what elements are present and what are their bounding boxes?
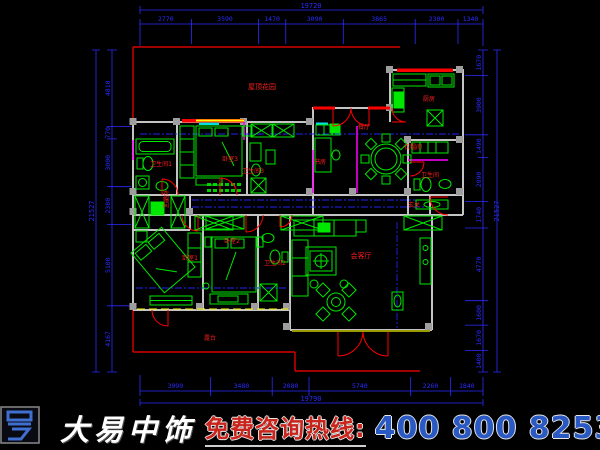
label-bedroom1: 卧室1 (182, 254, 198, 262)
label-cloak-right: 衣帽间 (404, 143, 422, 151)
dim-right-seg-4: 1740 (475, 207, 483, 223)
dim-bottom-seg-5: 1840 (459, 382, 475, 390)
dim-bottom-total: 19790 (300, 395, 321, 403)
dim-right-seg-2: 1490 (475, 138, 483, 154)
dim-bottom-seg-3: 5740 (352, 382, 368, 390)
label-terrace: 露台 (204, 334, 216, 342)
wall-posts (130, 66, 464, 330)
dim-top-seg-2: 1470 (264, 15, 280, 23)
dim-right-seg-6: 1600 (475, 305, 483, 321)
label-bath-right: 卫生间 (421, 171, 439, 179)
hotline-label: 免费咨询热线: (205, 409, 366, 447)
dim-left-seg-0: 4810 (104, 80, 112, 96)
dim-right-seg-5: 4770 (475, 256, 483, 272)
dim-right-seg-0: 1670 (475, 55, 483, 71)
dim-bottom-seg-2: 2080 (283, 382, 299, 390)
label-study: 书房 (314, 158, 326, 166)
label-dining: 餐厅 (358, 123, 370, 131)
brand-name: 大易中饰 (60, 407, 196, 449)
dim-top-total: 19720 (300, 2, 321, 10)
label-entry: 玄关 (408, 201, 420, 209)
label-bath1: 卫生间1 (150, 160, 172, 168)
dim-right-seg-7: 1670 (475, 330, 483, 346)
dim-top-seg-6: 1340 (463, 15, 479, 23)
dim-top-seg-1: 3590 (217, 15, 233, 23)
dim-bottom-seg-1: 3480 (234, 382, 250, 390)
terrace-outline (133, 47, 420, 371)
label-bath2: 卫生间2 (264, 259, 286, 267)
dim-right-seg-3: 2890 (475, 172, 483, 188)
furniture-layer (131, 74, 454, 321)
dim-right-total: 21527 (493, 200, 501, 221)
dim-right-seg-8: 1400 (475, 353, 483, 369)
dim-left-seg-2: 3000 (104, 155, 112, 171)
hotline-phone-number: 400 800 8253 (375, 411, 600, 446)
label-cloak-left: 衣帽间 (162, 189, 169, 209)
dim-top-seg-4: 3865 (371, 15, 387, 23)
label-bedroom2: 卧室2 (224, 237, 240, 245)
dayi-logo-icon (0, 406, 40, 444)
dim-bottom-seg-4: 2260 (423, 382, 439, 390)
dim-left-seg-1: 770 (104, 127, 112, 139)
dim-left-seg-4: 5100 (104, 257, 112, 273)
dim-top-seg-5: 2300 (429, 15, 445, 23)
dim-left-total: 21527 (88, 200, 96, 221)
label-living: 会客厅 (351, 251, 372, 260)
dim-top-seg-0: 2770 (158, 15, 174, 23)
dim-left-seg-3: 2380 (104, 198, 112, 214)
label-kitchen: 厨房 (423, 95, 435, 103)
label-bath3: 卫生间3 (242, 167, 264, 175)
footer-watermark-bar: 大易中饰 免费咨询热线: 400 800 8253 (0, 406, 600, 450)
floor-plan-canvas: 19720 2770 3590 1470 3090 3865 2300 1340… (0, 0, 600, 450)
dim-bottom-seg-0: 3990 (167, 382, 183, 390)
label-bedroom3: 卧室3 (222, 155, 238, 163)
dim-right-seg-1: 3900 (475, 97, 483, 113)
dim-left-seg-5: 4167 (104, 331, 112, 347)
label-roof-garden: 屋顶花园 (248, 82, 276, 91)
dim-top-seg-3: 3090 (307, 15, 323, 23)
